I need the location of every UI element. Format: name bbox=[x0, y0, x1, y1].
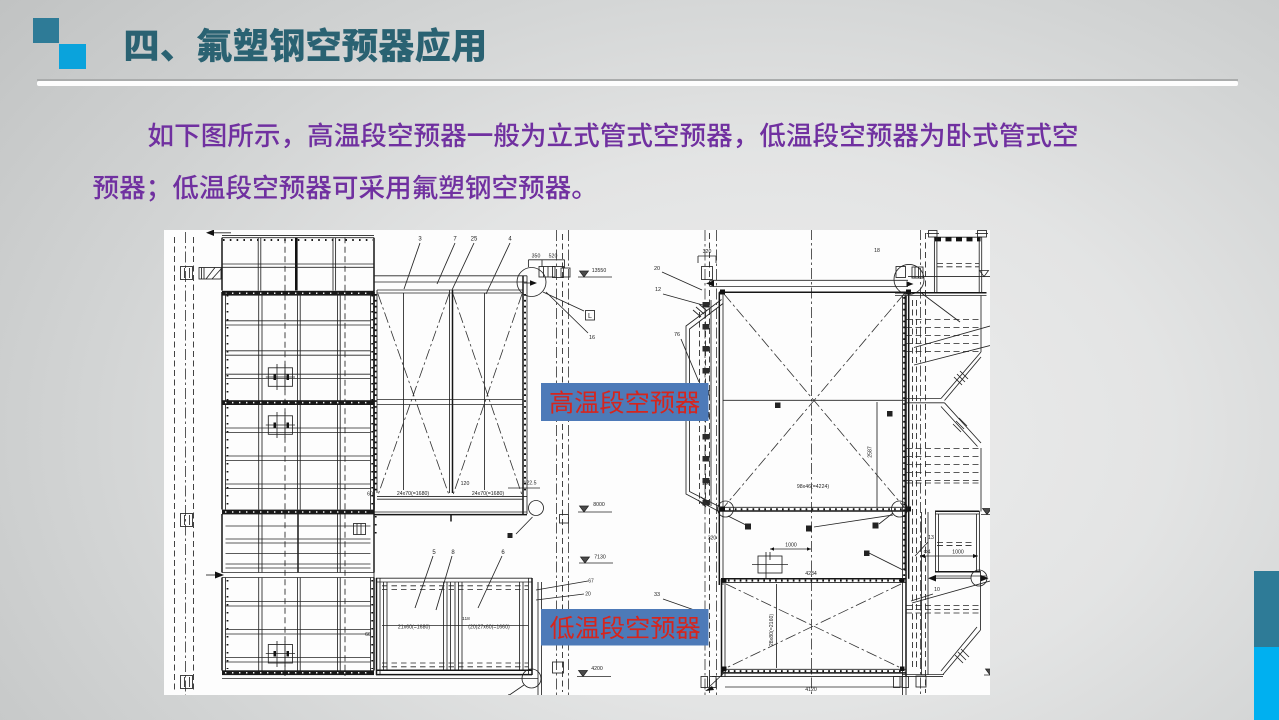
svg-text:21x60(=1680): 21x60(=1680) bbox=[398, 624, 430, 630]
svg-text:7130: 7130 bbox=[594, 555, 606, 561]
svg-text:20: 20 bbox=[585, 592, 591, 598]
svg-text:16: 16 bbox=[589, 335, 595, 341]
svg-text:18: 18 bbox=[874, 248, 880, 254]
svg-text:12: 12 bbox=[655, 287, 661, 293]
svg-text:320: 320 bbox=[703, 249, 712, 255]
svg-text:1000: 1000 bbox=[785, 543, 797, 549]
svg-text:350: 350 bbox=[532, 254, 541, 260]
svg-text:4200: 4200 bbox=[591, 666, 603, 672]
svg-text:20: 20 bbox=[654, 266, 660, 272]
svg-text:118: 118 bbox=[462, 616, 470, 622]
svg-text:24x70(=1680): 24x70(=1680) bbox=[397, 491, 429, 497]
svg-text:L: L bbox=[588, 313, 592, 320]
svg-text:76: 76 bbox=[674, 332, 680, 338]
svg-text:67: 67 bbox=[588, 579, 594, 585]
svg-text:120: 120 bbox=[461, 481, 470, 487]
svg-text:(20)27x60(=1660): (20)27x60(=1660) bbox=[468, 625, 510, 631]
svg-text:122.5: 122.5 bbox=[524, 481, 537, 487]
svg-text:25: 25 bbox=[471, 237, 478, 243]
svg-text:2587: 2587 bbox=[868, 446, 874, 458]
svg-text:60: 60 bbox=[365, 632, 371, 638]
svg-text:1000: 1000 bbox=[952, 550, 964, 556]
svg-text:98x46(=4224): 98x46(=4224) bbox=[797, 484, 829, 490]
svg-text:33: 33 bbox=[654, 592, 660, 598]
svg-text:60: 60 bbox=[367, 492, 373, 498]
svg-text:4120: 4120 bbox=[805, 687, 817, 693]
svg-text:4284: 4284 bbox=[805, 571, 817, 577]
svg-text:13: 13 bbox=[928, 535, 934, 541]
svg-text:28x80(=2160): 28x80(=2160) bbox=[769, 614, 775, 646]
svg-text:8000: 8000 bbox=[593, 502, 605, 508]
svg-text:10: 10 bbox=[934, 587, 940, 593]
svg-text:13550: 13550 bbox=[592, 268, 607, 274]
svg-text:24x70(=1680): 24x70(=1680) bbox=[472, 491, 504, 497]
